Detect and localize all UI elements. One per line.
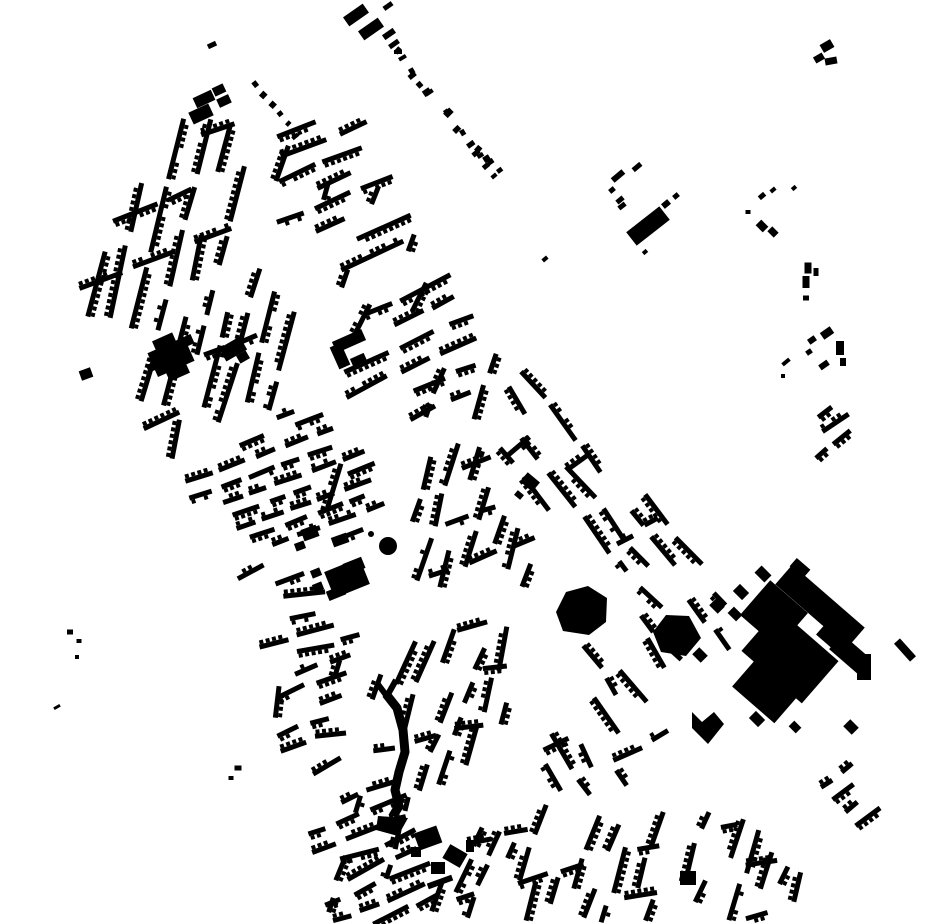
map-viewport (0, 0, 930, 924)
figure-ground-map (0, 0, 930, 924)
